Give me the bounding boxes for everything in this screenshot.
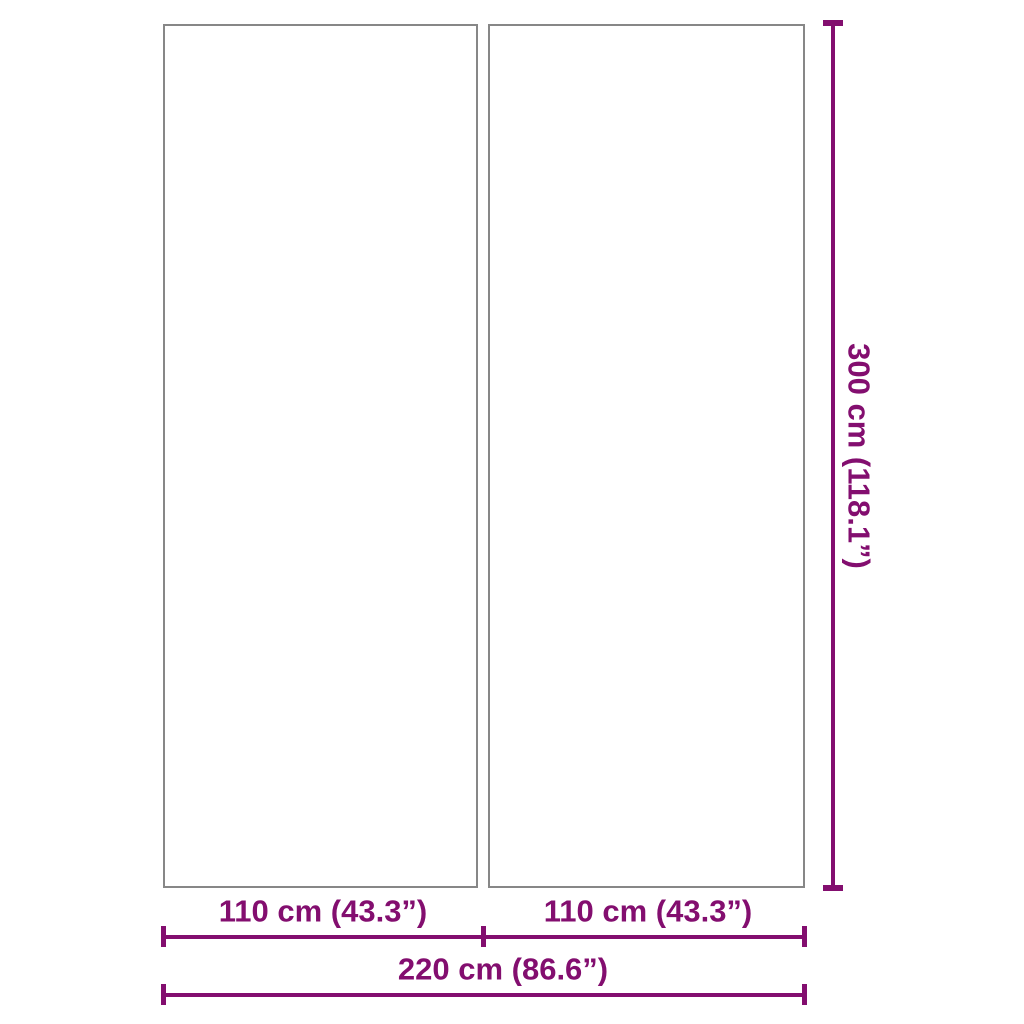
- height-dimension-line: [831, 21, 835, 890]
- left-width-label: 110 cm (43.3”): [219, 896, 428, 927]
- width-dimension-tick-left: [161, 926, 166, 947]
- height-dimension-cap-bottom: [823, 885, 843, 891]
- right-width-label: 110 cm (43.3”): [544, 896, 753, 927]
- total-width-dimension-line: [163, 993, 805, 997]
- dimension-diagram: 110 cm (43.3”) 110 cm (43.3”) 220 cm (86…: [0, 0, 1024, 1024]
- height-label: 300 cm (118.1”): [844, 343, 875, 569]
- height-dimension-cap-top: [823, 20, 843, 26]
- width-dimension-tick-middle: [481, 926, 486, 947]
- total-width-label: 220 cm (86.6”): [398, 954, 608, 985]
- panel-right: [488, 24, 805, 888]
- width-dimension-tick-right: [802, 926, 807, 947]
- total-width-tick-right: [802, 984, 807, 1005]
- panel-left: [163, 24, 478, 888]
- total-width-tick-left: [161, 984, 166, 1005]
